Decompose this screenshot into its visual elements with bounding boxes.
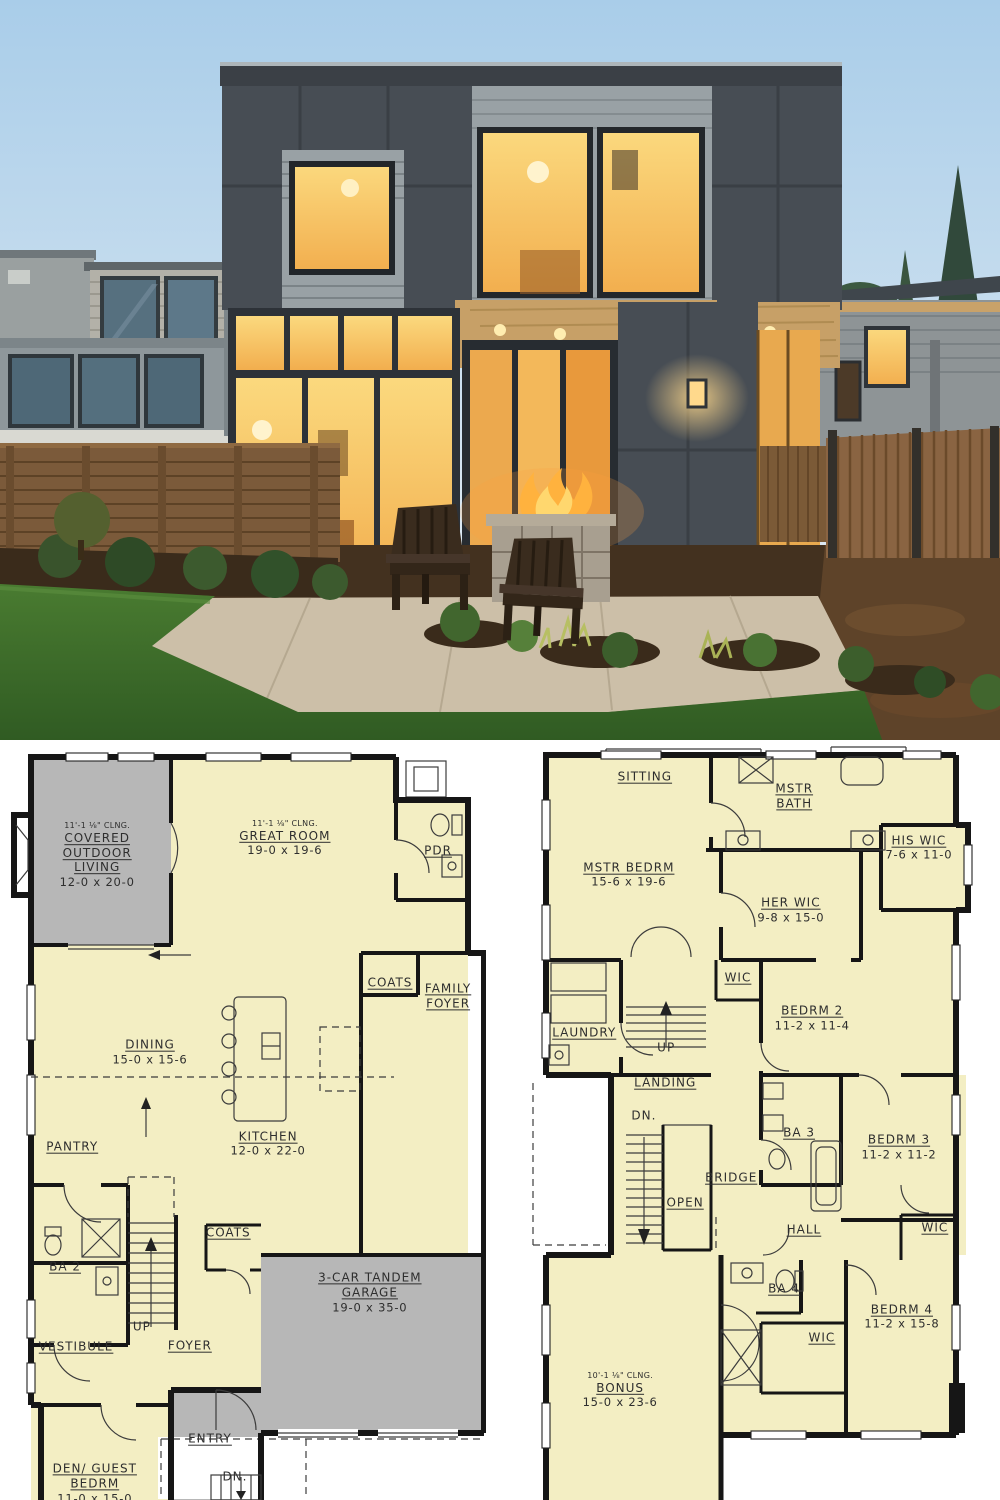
room-label-covered-outdoor-living: 11'-1 ⅛" CLNG.COVEREDOUTDOORLIVING12-0 x… [60, 821, 135, 889]
room-label-mstr-bath: MSTRBATH [775, 782, 813, 811]
room-label-ba-4: BA 4 [768, 1281, 800, 1296]
room-label-landing: LANDING [634, 1076, 696, 1091]
main-floor-plan: 11'-1 ⅛" CLNG.COVEREDOUTDOORLIVING12-0 x… [6, 745, 486, 1500]
room-label-dn: DN. [222, 1470, 247, 1485]
room-label-her-wic: HER WIC9-8 x 15-0 [757, 896, 824, 925]
room-label-wic-bedrm3: WIC [921, 1221, 948, 1236]
upper-floor-plan: SITTINGMSTRBATHHIS WIC7-6 x 11-0MSTR BED… [511, 745, 996, 1500]
room-label-pdr: PDR [424, 843, 452, 858]
room-label-bonus: 10'-1 ⅛" CLNG.BONUS15-0 x 23-6 [583, 1371, 658, 1409]
room-label-bedrm-4: BEDRM 411-2 x 15-8 [864, 1302, 939, 1331]
room-label-garage: 3-CAR TANDEMGARAGE19-0 x 35-0 [318, 1271, 421, 1314]
room-label-entry: ENTRY [188, 1432, 232, 1447]
room-label-foyer: FOYER [168, 1339, 212, 1354]
room-label-sitting: SITTING [618, 769, 672, 784]
house-photo [0, 0, 1000, 740]
room-label-up: UP [657, 1040, 675, 1055]
room-label-coats-upper: COATS [368, 976, 413, 991]
upper-floor-labels: SITTINGMSTRBATHHIS WIC7-6 x 11-0MSTR BED… [511, 745, 996, 1500]
room-label-hall: HALL [787, 1223, 822, 1238]
room-label-den-guest-bedrm: DEN/ GUESTBEDRM11-0 x 15-0 [53, 1462, 137, 1500]
room-label-bedrm-3: BEDRM 311-2 x 11-2 [861, 1133, 936, 1162]
room-label-wic-bedrm2: WIC [725, 970, 752, 985]
room-label-bedrm-2: BEDRM 211-2 x 11-4 [775, 1004, 850, 1033]
room-label-his-wic: HIS WIC7-6 x 11-0 [885, 833, 952, 862]
room-label-up: UP [133, 1320, 151, 1335]
room-label-wic-bedrm4: WIC [808, 1331, 835, 1346]
room-label-kitchen: KITCHEN12-0 x 22-0 [231, 1129, 306, 1158]
room-label-family-foyer: FAMILYFOYER [425, 982, 471, 1011]
main-floor-labels: 11'-1 ⅛" CLNG.COVEREDOUTDOORLIVING12-0 x… [6, 745, 486, 1500]
pin-image: 11'-1 ⅛" CLNG.COVEREDOUTDOORLIVING12-0 x… [0, 0, 1000, 1500]
room-label-open: OPEN [666, 1195, 703, 1210]
room-label-great-room: 11'-1 ⅛" CLNG.GREAT ROOM19-0 x 19-6 [239, 819, 330, 857]
room-label-coats-lower: COATS [206, 1225, 251, 1240]
room-label-ba-2: BA 2 [49, 1259, 81, 1274]
room-label-pantry: PANTRY [46, 1139, 98, 1154]
room-label-dn: DN. [631, 1109, 656, 1124]
floor-plans: 11'-1 ⅛" CLNG.COVEREDOUTDOORLIVING12-0 x… [0, 740, 1000, 1500]
main-house-upper-floor [220, 62, 842, 310]
room-label-ba-3: BA 3 [783, 1126, 815, 1141]
room-label-vestibule: VESTIBULE [39, 1339, 114, 1354]
room-label-dining: DINING15-0 x 15-6 [112, 1038, 187, 1067]
room-label-mstr-bedrm: MSTR BEDRM15-6 x 19-6 [583, 861, 674, 890]
room-label-laundry: LAUNDRY [552, 1026, 616, 1041]
neighbor-house [0, 250, 242, 476]
room-label-bridge: BRIDGE [705, 1171, 757, 1186]
